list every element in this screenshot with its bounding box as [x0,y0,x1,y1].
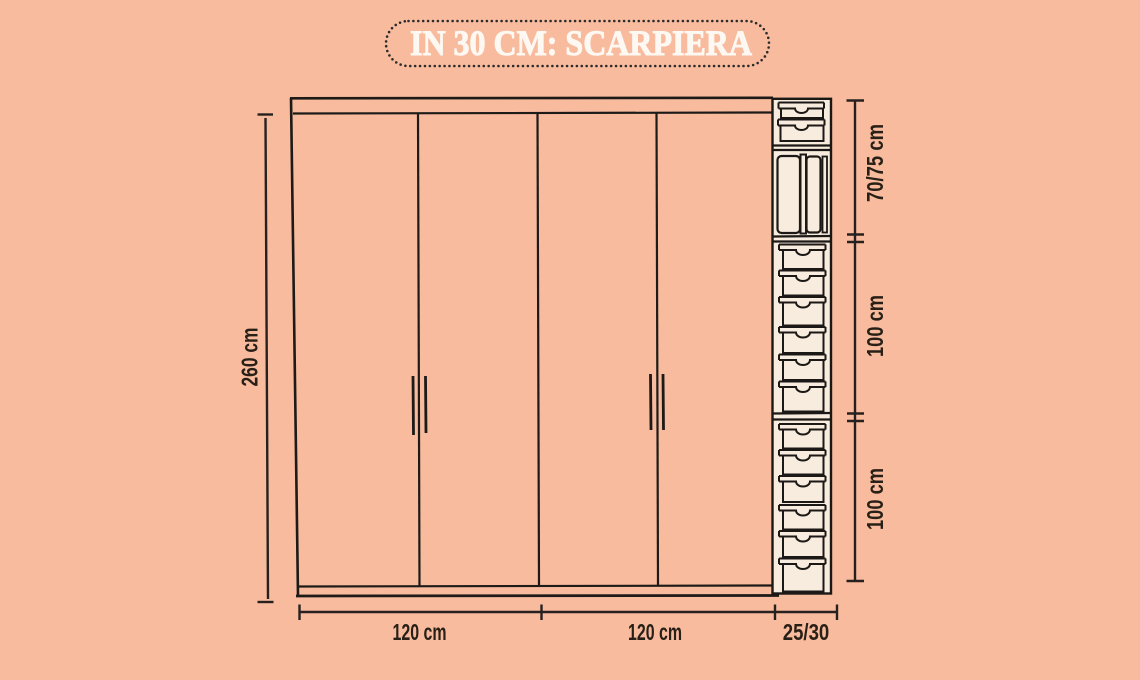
svg-text:120 cm: 120 cm [393,619,447,645]
svg-text:25/30: 25/30 [783,619,830,645]
svg-text:260 cm: 260 cm [237,328,263,387]
svg-text:100 cm: 100 cm [862,295,888,357]
svg-text:100 cm: 100 cm [862,468,888,530]
svg-text:IN 30 CM: SCARPIERA: IN 30 CM: SCARPIERA [410,23,752,63]
svg-text:120 cm: 120 cm [628,619,682,645]
svg-text:70/75 cm: 70/75 cm [862,124,888,202]
